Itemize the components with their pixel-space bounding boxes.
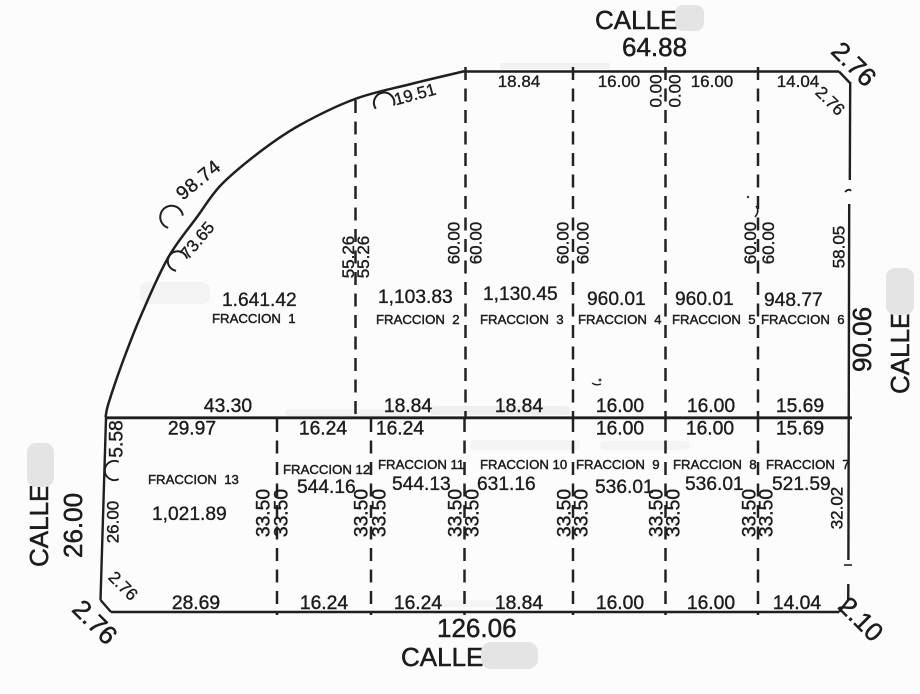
svg-text:18.84: 18.84 [498,72,541,91]
svg-text:0.00: 0.00 [647,74,666,107]
svg-text:FRACCION 2: FRACCION 2 [376,312,460,327]
svg-text:16.00: 16.00 [596,593,644,614]
svg-text:960.01: 960.01 [675,289,734,310]
svg-text:28.69: 28.69 [172,593,220,614]
svg-text:FRACCION 7: FRACCION 7 [766,457,850,472]
svg-text:FRACCION 3: FRACCION 3 [480,312,564,327]
svg-text:1,021.89: 1,021.89 [152,504,227,525]
svg-text:16.00: 16.00 [687,396,735,417]
svg-text:CALLE: CALLE [401,642,483,672]
svg-text:16.24: 16.24 [300,593,349,614]
svg-text:16.00: 16.00 [691,72,734,91]
svg-text:18.84: 18.84 [495,396,544,417]
svg-text:948.77: 948.77 [764,290,823,311]
svg-text:60.00: 60.00 [741,222,760,265]
svg-text:60.00: 60.00 [445,222,464,265]
svg-text:16.24: 16.24 [299,419,348,440]
svg-text:18.84: 18.84 [495,593,544,614]
svg-text:14.04: 14.04 [773,593,822,614]
svg-text:CALLE: CALLE [24,485,54,567]
svg-text:26.00: 26.00 [104,501,123,544]
svg-text:544.13: 544.13 [392,474,451,495]
svg-text:64.88: 64.88 [622,32,687,62]
svg-text:14.04: 14.04 [777,72,820,91]
svg-text:16.00: 16.00 [596,396,644,417]
svg-text:60.00: 60.00 [467,222,486,265]
svg-text:5.58: 5.58 [107,420,128,458]
svg-text:1.641.42: 1.641.42 [222,290,297,311]
svg-text:536.01: 536.01 [685,474,744,495]
svg-text:33.50: 33.50 [463,489,484,537]
svg-text:16.00: 16.00 [598,72,641,91]
svg-text:16.24: 16.24 [376,419,425,440]
svg-text:60.00: 60.00 [554,222,573,265]
svg-text:536.01: 536.01 [595,477,654,498]
svg-text:15.69: 15.69 [776,396,824,417]
svg-text:FRACCION 1: FRACCION 1 [212,311,296,326]
svg-text:43.30: 43.30 [204,396,252,417]
svg-text:0.00: 0.00 [666,74,685,107]
svg-text:960.01: 960.01 [587,289,646,310]
svg-text:33.50: 33.50 [664,489,685,537]
svg-text:16.00: 16.00 [686,419,734,440]
svg-text:90.06: 90.06 [847,307,877,372]
svg-text:FRACCION 4: FRACCION 4 [578,312,662,327]
svg-text:29.97: 29.97 [168,419,216,440]
svg-text:18.84: 18.84 [384,396,433,417]
svg-text:FRACCION 13: FRACCION 13 [148,472,239,487]
svg-text:FRACCION 10: FRACCION 10 [480,457,567,472]
svg-text:33.50: 33.50 [272,489,293,537]
svg-text:1,130.45: 1,130.45 [483,284,558,305]
svg-text:FRACCION 11: FRACCION 11 [378,457,464,472]
svg-text:60.00: 60.00 [574,222,593,265]
svg-text:544.16: 544.16 [297,477,356,498]
svg-text:631.16: 631.16 [477,474,536,495]
svg-text:FRACCION 9: FRACCION 9 [576,457,660,472]
svg-text:55.26: 55.26 [354,236,373,279]
svg-text:16.00: 16.00 [596,419,644,440]
svg-text:126.06: 126.06 [437,613,517,643]
svg-text:33.50: 33.50 [370,489,391,537]
svg-text:58.05: 58.05 [830,226,849,269]
svg-text:1,103.83: 1,103.83 [378,287,453,308]
svg-text:33.50: 33.50 [757,489,778,537]
svg-text:CALLE: CALLE [595,5,677,35]
svg-text:FRACCION 12: FRACCION 12 [283,462,370,477]
svg-text:16.24: 16.24 [394,593,443,614]
svg-text:FRACCION 8: FRACCION 8 [673,457,757,472]
svg-text:521.59: 521.59 [772,474,831,495]
svg-text:CALLE: CALLE [885,312,915,394]
svg-text:FRACCION 5: FRACCION 5 [672,312,756,327]
svg-text:32.02: 32.02 [828,487,847,530]
svg-text:33.50: 33.50 [572,489,593,537]
svg-text:26.00: 26.00 [58,493,88,558]
svg-text:60.00: 60.00 [759,222,778,265]
svg-text:15.69: 15.69 [776,419,824,440]
svg-text:FRACCION 6: FRACCION 6 [761,312,845,327]
svg-text:16.00: 16.00 [687,593,735,614]
